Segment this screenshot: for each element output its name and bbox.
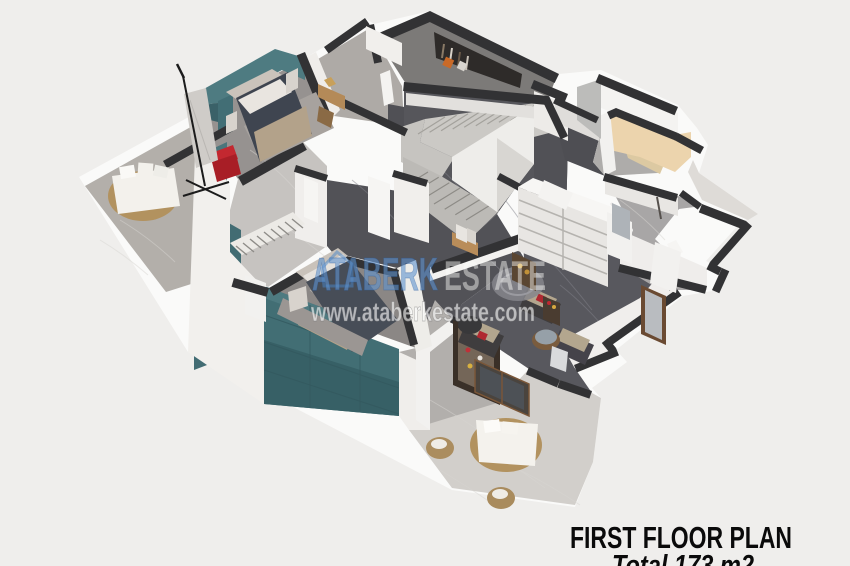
- svg-text:www.ataberkestate.com: www.ataberkestate.com: [310, 297, 535, 327]
- svg-text:Total 173 m2: Total 173 m2: [612, 550, 754, 566]
- svg-text:ATABERK: ATABERK: [312, 248, 438, 300]
- svg-text:ESTATE: ESTATE: [444, 252, 546, 299]
